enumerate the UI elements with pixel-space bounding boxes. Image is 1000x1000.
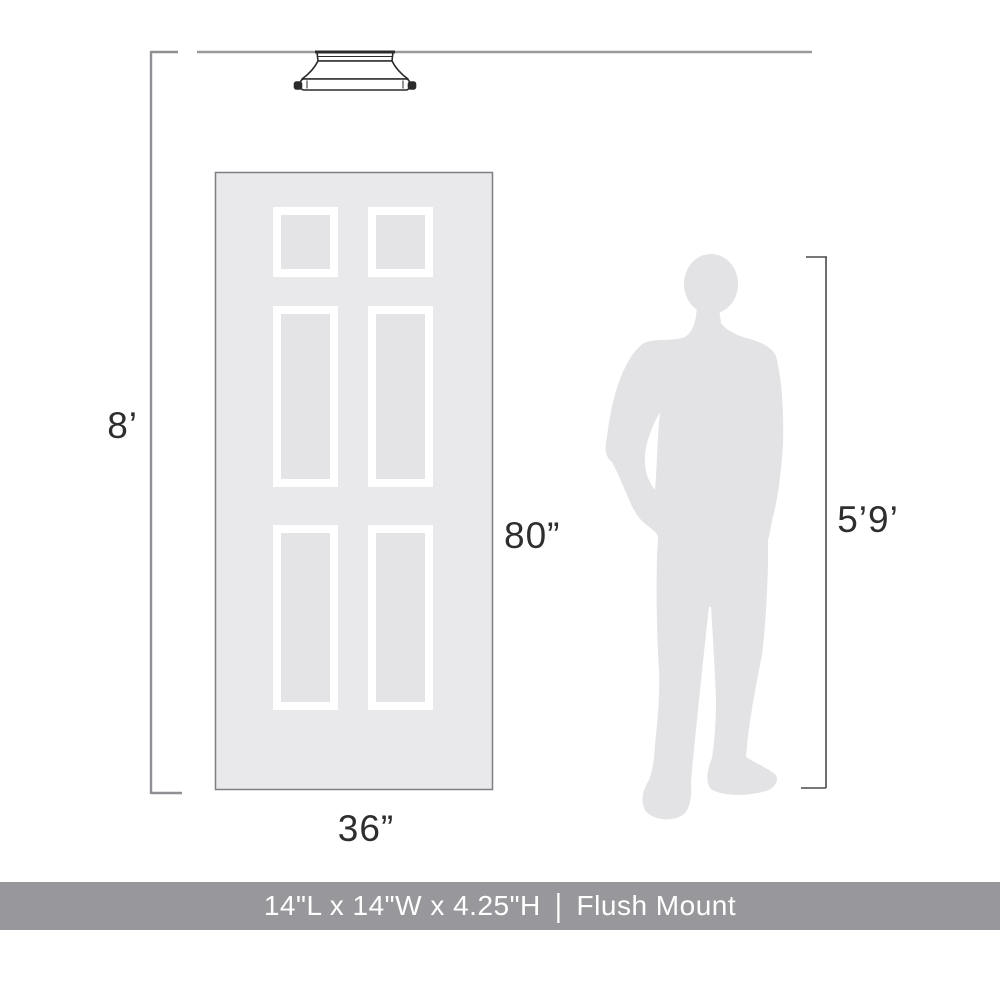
person-body — [606, 308, 784, 819]
door-slab — [216, 173, 493, 790]
product-type-text: Flush Mount — [577, 890, 737, 922]
door-illustration — [216, 173, 493, 790]
product-spec-bar: 14"L x 14"W x 4.25"H | Flush Mount — [0, 882, 1000, 930]
person-height-label: 5’9’ — [823, 501, 913, 538]
fixture-dome — [302, 61, 408, 79]
ceiling-height-bracket — [151, 51, 182, 794]
fixture-rim — [301, 79, 410, 90]
door-panel-bottom-right — [368, 525, 433, 710]
door-panel-top-right — [368, 207, 433, 277]
spec-separator: | — [555, 888, 563, 925]
door-width-label: 36” — [316, 810, 416, 847]
door-panel-bottom-left — [273, 525, 338, 710]
person-silhouette — [606, 254, 784, 819]
flush-mount-light-icon — [295, 52, 416, 90]
person-head — [684, 254, 738, 314]
door-panel-middle-right — [368, 306, 433, 487]
fixture-finial-left — [295, 82, 302, 89]
door-panel-top-left — [273, 207, 338, 277]
product-scale-diagram: 8’ 80” 36” 5’9’ 14"L x 14"W x 4.25"H | F… — [0, 0, 1000, 1000]
fixture-finial-right — [409, 82, 416, 89]
ceiling-height-label: 8’ — [86, 407, 138, 444]
door-height-label: 80” — [504, 517, 584, 554]
product-dimensions-text: 14"L x 14"W x 4.25"H — [264, 890, 541, 922]
door-panel-middle-left — [273, 306, 338, 487]
